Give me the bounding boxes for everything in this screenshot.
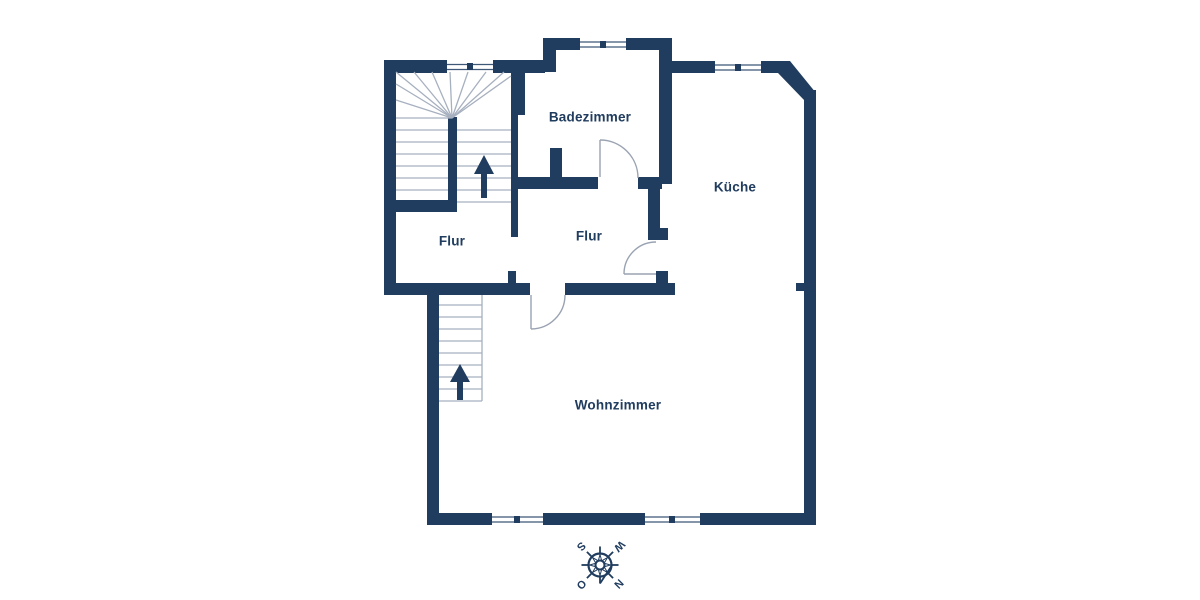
room-label-kueche: Küche <box>714 180 757 195</box>
window <box>645 513 700 525</box>
up-arrow-icon <box>450 364 470 400</box>
wall-flur-bottom-left <box>384 283 530 295</box>
compass-rose-icon: N O S W <box>554 519 645 600</box>
stair-treads-left-run <box>396 130 448 190</box>
wall-flur-bottom-right <box>565 283 675 295</box>
staircase-lower <box>439 295 482 401</box>
wall-top-mid <box>492 60 545 73</box>
compass-letter-east: O <box>573 577 588 592</box>
window <box>580 38 626 50</box>
wall-kitchen-top-left <box>672 61 716 73</box>
wall-bath-kitchen <box>659 38 672 184</box>
compass-letters: N O S W <box>554 519 645 600</box>
window <box>447 60 493 73</box>
wall-lower-left <box>427 283 439 525</box>
wall-right <box>804 90 816 525</box>
room-label-wohnzimmer: Wohnzimmer <box>575 398 662 413</box>
room-label-flur-center: Flur <box>576 229 603 244</box>
wall-stair-bath <box>511 72 525 115</box>
room-label-flur-left: Flur <box>439 234 466 249</box>
room-label-badezimmer: Badezimmer <box>549 110 632 125</box>
door-livingroom <box>531 295 565 329</box>
wall-flur-kitchen-jamb <box>648 228 668 240</box>
wall-bottom <box>427 513 816 525</box>
wall-flur-divider <box>511 115 518 237</box>
wall-shower-stub <box>550 148 562 180</box>
wall-stair-bottom <box>396 200 448 212</box>
stair-winder-fan <box>396 72 511 118</box>
compass-letter-west: W <box>611 538 627 554</box>
wall-bath-top-left <box>543 38 581 50</box>
wall-left <box>384 60 396 295</box>
compass-letter-north: N <box>611 576 625 590</box>
floor-plan-page: Badezimmer Küche Flur Flur Wohnzimmer N … <box>0 0 1200 600</box>
door-bathroom <box>600 140 638 178</box>
wall-door-jamb-stub <box>656 271 668 283</box>
floor-plan-drawing: Badezimmer Küche Flur Flur Wohnzimmer N … <box>0 0 1200 600</box>
door-kitchen <box>624 242 656 274</box>
compass-letter-south: S <box>574 539 588 553</box>
room-labels: Badezimmer Küche Flur Flur Wohnzimmer <box>439 110 757 413</box>
up-arrow-icon <box>474 155 494 198</box>
wall-stair-newel <box>448 117 457 212</box>
window <box>715 61 761 73</box>
wall-flur-divider-stub <box>508 271 516 285</box>
window <box>492 513 543 525</box>
wall-kitchen-livingroom-nib <box>796 283 804 291</box>
